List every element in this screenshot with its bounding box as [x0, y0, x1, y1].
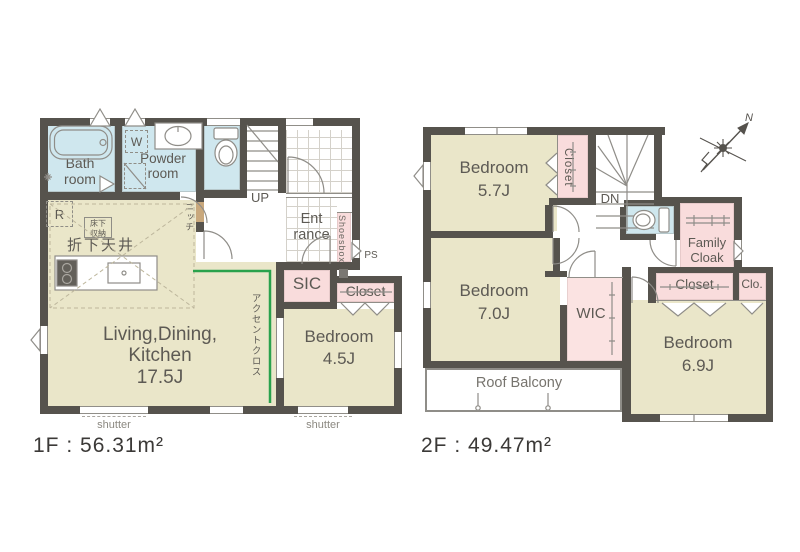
wall [620, 200, 680, 206]
compass-north-label: N [741, 112, 757, 124]
window [423, 162, 431, 190]
bedroom3-label: Bedroom 6.9J [634, 332, 762, 378]
closet-row-bottom-line [656, 300, 766, 301]
bedroom2-label: Bedroom 7.0J [431, 280, 557, 326]
wall [728, 414, 773, 422]
wall [648, 267, 773, 273]
wall [423, 231, 553, 238]
floorplan-2f: Bedroom 5.7J Closet DN Family Cloak Bedr… [0, 0, 800, 552]
wall [588, 127, 596, 205]
wall [620, 234, 656, 240]
toilet-room-2f [626, 206, 674, 234]
wall [734, 197, 742, 240]
dn-label: DN [596, 192, 624, 207]
wall [560, 305, 567, 361]
wic-label: WIC [569, 306, 613, 323]
window [465, 127, 527, 135]
wall [674, 200, 680, 240]
wic-top-line [567, 277, 623, 278]
closet-mid-label: Closet [656, 277, 733, 292]
family-cloak-label: Family Cloak [678, 236, 736, 265]
wall [545, 271, 567, 277]
bedroom1-label: Bedroom 5.7J [431, 157, 557, 203]
window [423, 282, 431, 308]
wall [527, 127, 665, 135]
wall [423, 127, 431, 162]
closet-top-label: Closet [561, 138, 574, 196]
closet-left-line [557, 135, 558, 198]
wall [423, 308, 431, 368]
wall [423, 361, 631, 368]
floorplan-page: W R 床下 収納 Bath room Powder room 折下天井 ニッチ… [0, 0, 800, 552]
wall [766, 267, 773, 422]
window [660, 414, 728, 422]
roof-balcony-label: Roof Balcony [455, 375, 583, 391]
floor2-area-label: 2F : 49.47m² [421, 434, 552, 458]
wall [648, 267, 656, 303]
wall [545, 205, 553, 231]
wall [654, 127, 662, 205]
clo-label: Clo. [737, 278, 767, 291]
wall [622, 414, 660, 422]
wall [622, 267, 631, 414]
